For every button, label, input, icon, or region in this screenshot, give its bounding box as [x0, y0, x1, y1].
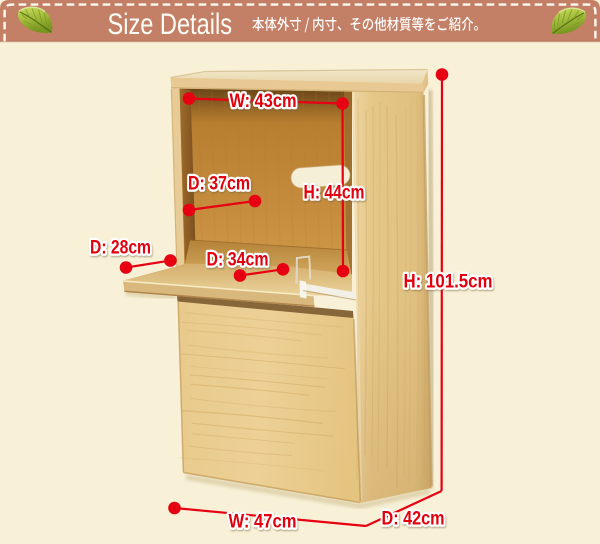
svg-text:W: 43cm: W: 43cm — [230, 90, 297, 112]
svg-text:Size Details: Size Details — [108, 8, 233, 41]
svg-text:D: 37cm: D: 37cm — [188, 173, 250, 195]
svg-text:D: 42cm: D: 42cm — [382, 508, 445, 530]
svg-text:W: 47cm: W: 47cm — [229, 510, 297, 532]
svg-text:D: 28cm: D: 28cm — [90, 237, 151, 259]
svg-text:H: 101.5cm: H: 101.5cm — [404, 271, 493, 293]
svg-text:D: 34cm: D: 34cm — [207, 249, 269, 271]
svg-text:H: 44cm: H: 44cm — [304, 182, 365, 204]
